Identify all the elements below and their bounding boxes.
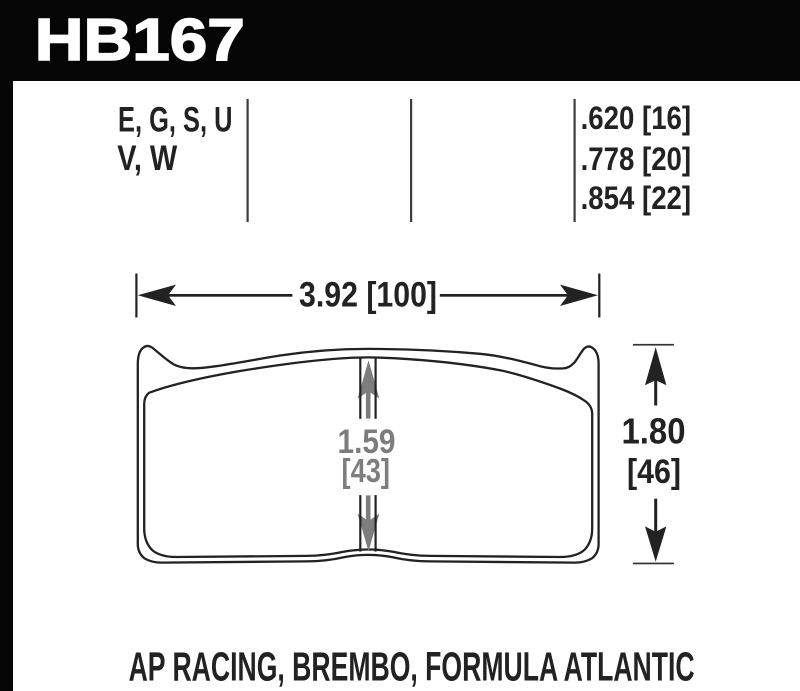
svg-text:.778 [20]: .778 [20] <box>581 141 692 177</box>
svg-text:HB167: HB167 <box>35 7 245 73</box>
svg-text:AP RACING, BREMBO, FORMULA ATL: AP RACING, BREMBO, FORMULA ATLANTIC <box>129 644 695 690</box>
svg-text:[43]: [43] <box>342 452 391 489</box>
svg-text:.620 [16]: .620 [16] <box>581 100 692 136</box>
svg-text:[46]: [46] <box>627 453 681 491</box>
svg-text:.854 [22]: .854 [22] <box>581 180 692 216</box>
svg-text:3.92 [100]: 3.92 [100] <box>299 275 437 315</box>
svg-text:E, G, S, U: E, G, S, U <box>118 100 233 140</box>
svg-text:V, W: V, W <box>117 138 177 178</box>
svg-text:1.80: 1.80 <box>622 410 686 451</box>
